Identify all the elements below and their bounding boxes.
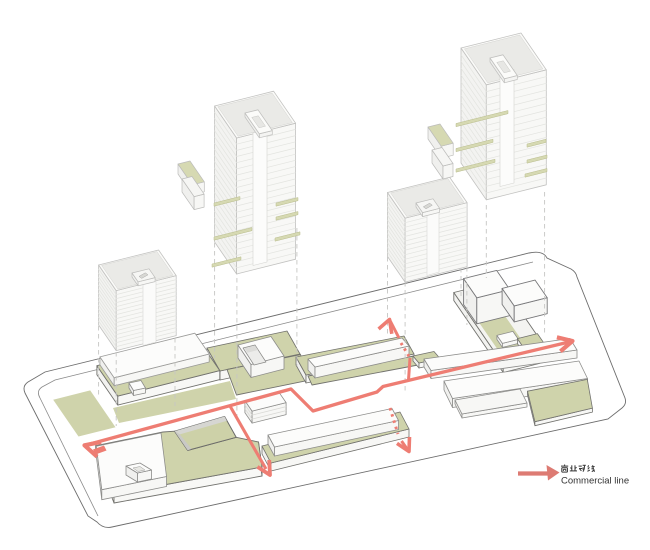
svg-text:Commercial line: Commercial line bbox=[561, 476, 629, 487]
